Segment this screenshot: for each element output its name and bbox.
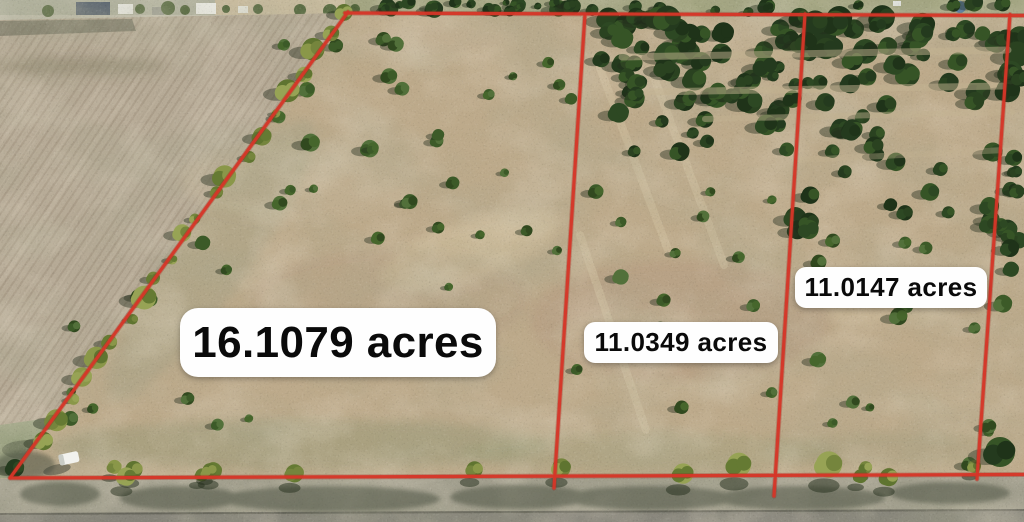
parcel-label-east: 11.0147 acres [795, 267, 987, 308]
parcel-label-middle: 11.0349 acres [584, 322, 778, 363]
aerial-photo: 16.1079 acres 11.0349 acres 11.0147 acre… [0, 0, 1024, 522]
photo-canvas [0, 0, 1024, 522]
parcel-label-west: 16.1079 acres [180, 308, 496, 377]
